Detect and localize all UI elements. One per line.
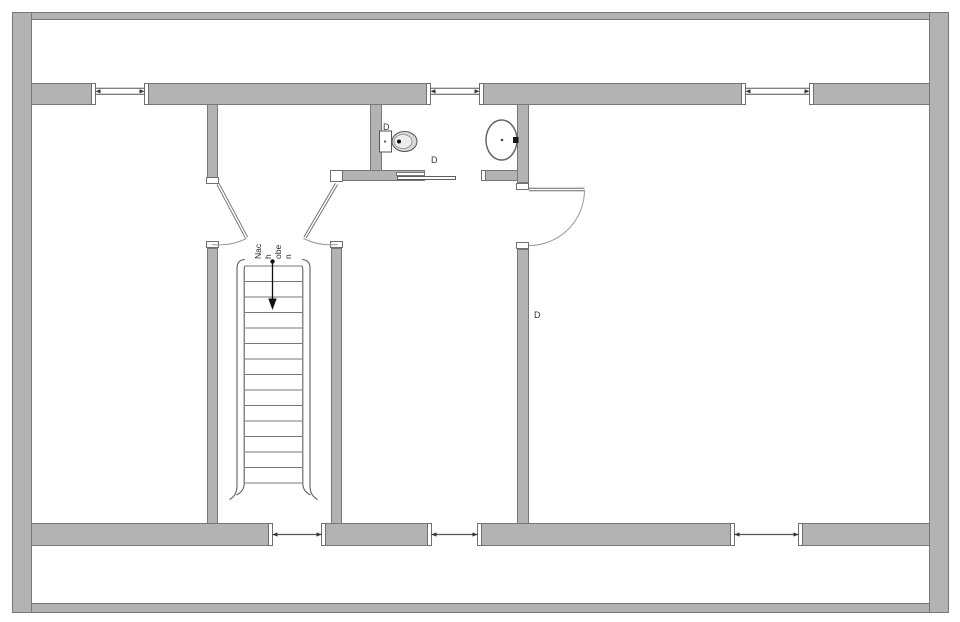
stair-label-line-3: obe — [274, 245, 283, 259]
door-label-bedroom: D — [534, 311, 541, 320]
door-label-bathroom-top: D — [383, 123, 390, 132]
stair-direction-arrow — [268, 259, 276, 310]
door-hall-left[interactable] — [212, 184, 247, 245]
floor-plan-canvas: D D D Nac h obe n — [0, 0, 960, 622]
window-bottom-2[interactable] — [431, 532, 478, 536]
stair-label-line-1: Nac — [254, 244, 263, 259]
window-top-2[interactable] — [430, 88, 480, 94]
staircase[interactable] — [230, 259, 318, 499]
stair-rail-right — [302, 260, 318, 500]
door-hall-right[interactable] — [304, 184, 338, 245]
window-bottom-3[interactable] — [734, 532, 799, 536]
window-top-1[interactable] — [95, 88, 145, 94]
door-bedroom[interactable] — [529, 190, 585, 246]
stair-label-line-2: h — [264, 254, 273, 259]
stair-label-line-4: n — [284, 254, 293, 259]
window-top-3[interactable] — [745, 88, 810, 94]
window-bottom-1[interactable] — [272, 532, 322, 536]
sink-icon[interactable] — [486, 120, 519, 160]
door-label-bathroom-sliding: D — [431, 156, 438, 165]
toilet-icon[interactable] — [380, 131, 418, 152]
stair-rail-left — [230, 260, 246, 500]
